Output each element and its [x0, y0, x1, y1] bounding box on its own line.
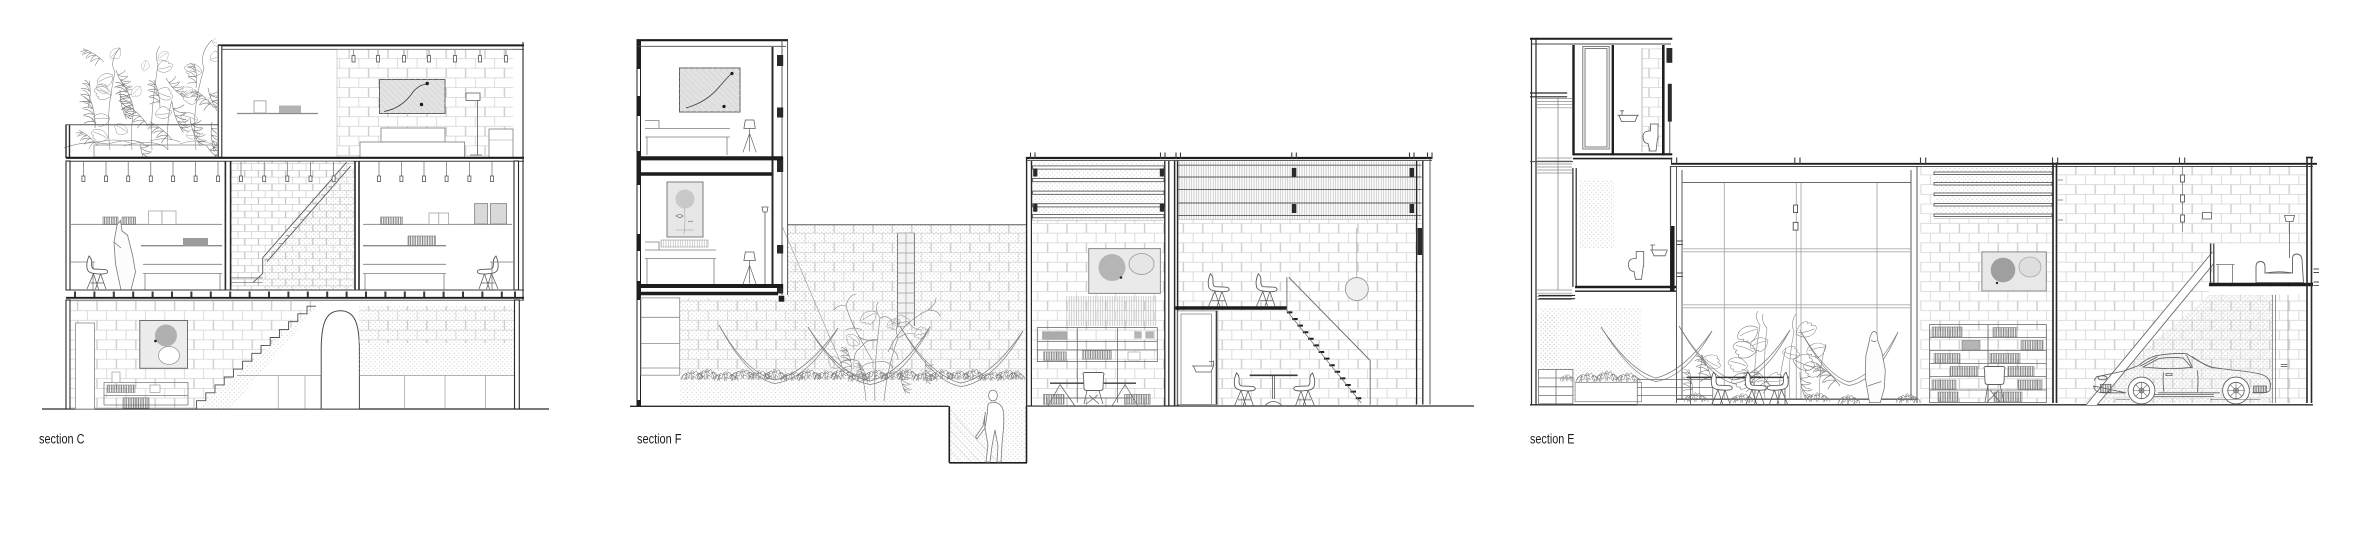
- svg-text:section F: section F: [637, 432, 682, 447]
- svg-text:section C: section C: [39, 432, 85, 447]
- svg-text:section E: section E: [1530, 432, 1575, 447]
